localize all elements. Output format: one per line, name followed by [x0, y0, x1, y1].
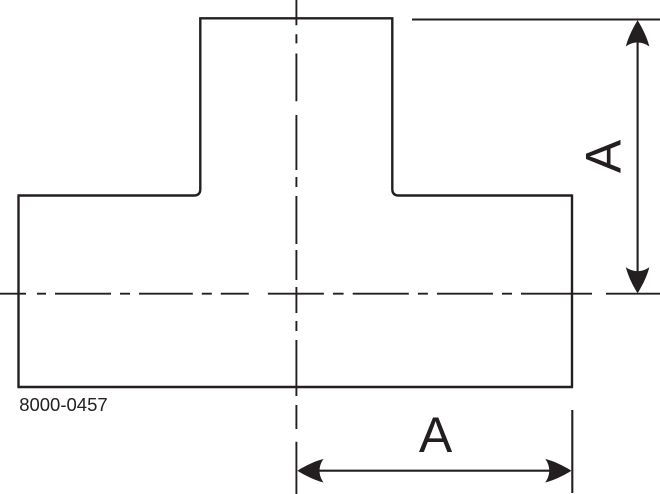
- svg-text:A: A: [576, 139, 632, 173]
- svg-text:A: A: [419, 407, 453, 463]
- svg-text:8000-0457: 8000-0457: [19, 394, 107, 415]
